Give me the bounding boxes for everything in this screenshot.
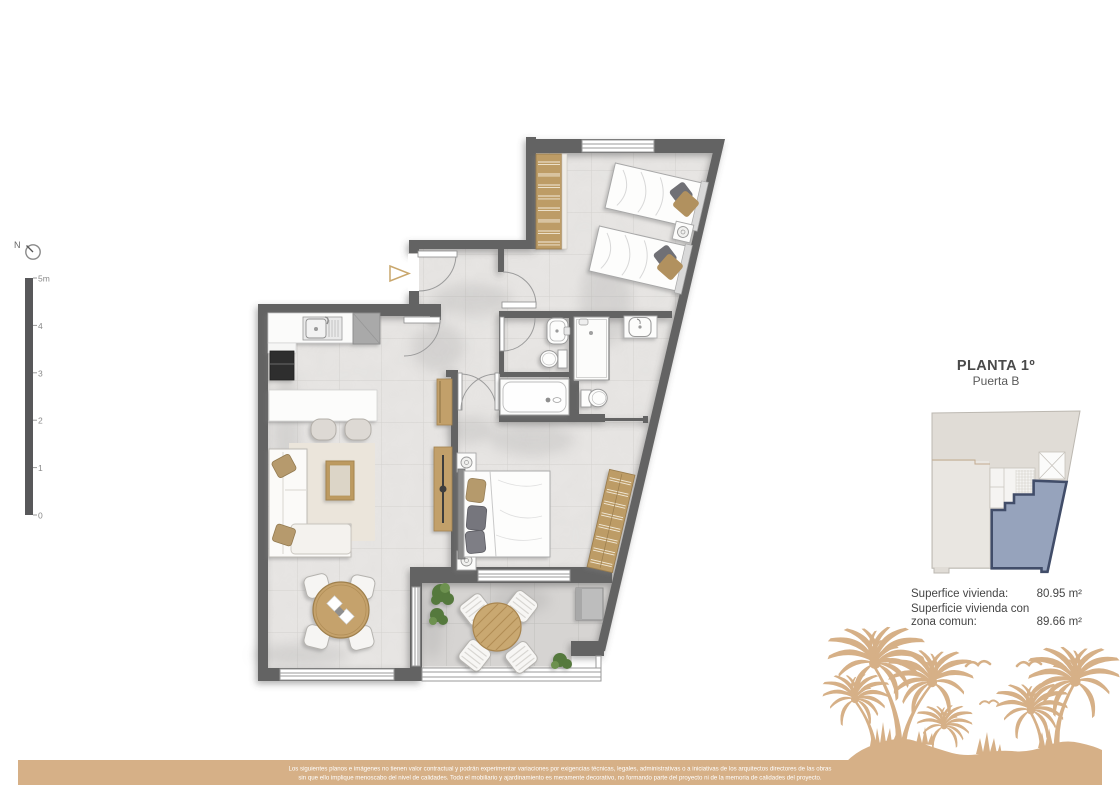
svg-text:Superficie vivienda con: Superficie vivienda con [911, 603, 1029, 615]
svg-text:89.66 m²: 89.66 m² [1037, 616, 1083, 628]
svg-text:zona comun:: zona comun: [911, 616, 977, 628]
svg-text:2: 2 [38, 416, 43, 426]
svg-text:PLANTA 1º: PLANTA 1º [957, 358, 1035, 374]
svg-text:Los siguientes planos e imágen: Los siguientes planos e imágenes no tien… [289, 766, 832, 773]
svg-text:Superfice vivienda:: Superfice vivienda: [911, 588, 1008, 600]
svg-text:0: 0 [38, 511, 43, 521]
svg-text:Puerta B: Puerta B [973, 374, 1020, 388]
svg-text:5m: 5m [38, 274, 50, 284]
svg-text:4: 4 [38, 321, 43, 331]
svg-text:80.95 m²: 80.95 m² [1037, 588, 1083, 600]
svg-text:3: 3 [38, 368, 43, 378]
svg-text:N: N [14, 240, 21, 250]
svg-text:1: 1 [38, 463, 43, 473]
svg-text:sin que ello implique menoscab: sin que ello implique menoscabo del nive… [298, 775, 822, 782]
